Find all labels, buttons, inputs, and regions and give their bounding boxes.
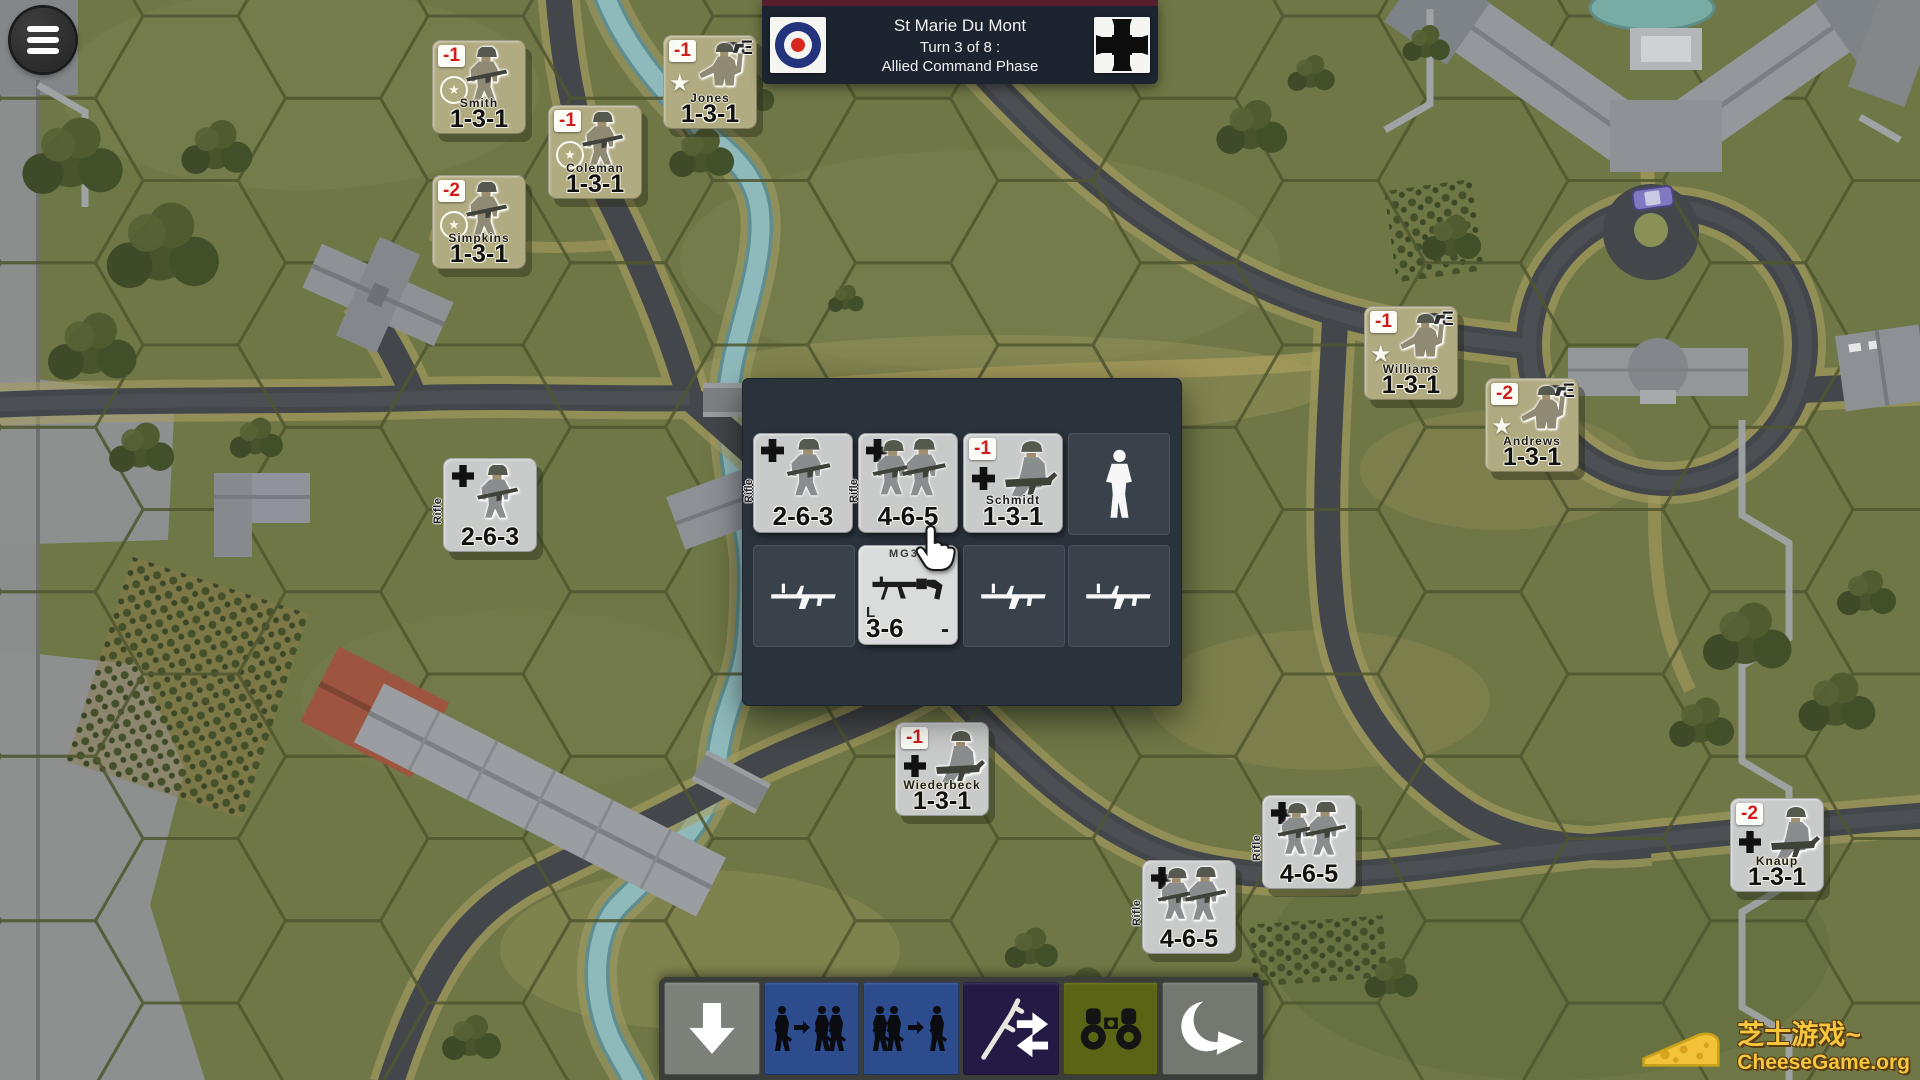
- modifier-badge: -1: [1370, 311, 1397, 333]
- unit-counter-rifle-465-a[interactable]: Rifle 4-6-5: [1142, 860, 1236, 954]
- weapon-name: MG34: [858, 548, 958, 560]
- unit-stats: 1-3-1: [432, 105, 526, 134]
- unit-type-label: Rifle: [848, 479, 860, 503]
- game-screen: -1 ★ Smith 1-3-1 -1 E ★ Jones 1-3-1 -1 ★…: [0, 0, 1920, 1080]
- soldier-join-icon: [771, 1001, 853, 1057]
- cheese-icon: [1635, 1024, 1727, 1072]
- unit-stats: 1-3-1: [1485, 443, 1579, 472]
- unit-counter-andrews[interactable]: -2 E ★ Andrews 1-3-1: [1485, 378, 1579, 472]
- unit-stats: 4-6-5: [1142, 925, 1236, 954]
- unit-stats: 1-3-1: [1364, 371, 1458, 400]
- site-watermark: 芝士游戏~ CheeseGame.org: [1635, 1021, 1910, 1074]
- unit-stats: 4-6-5: [858, 501, 958, 532]
- turn-indicator: Turn 3 of 8 :: [834, 39, 1086, 56]
- crescent-arrow-icon: [1175, 996, 1245, 1062]
- rifle-swap-icon: [972, 994, 1050, 1064]
- unit-stats: 1-3-1: [663, 100, 757, 129]
- unit-stats: 1-3-1: [1730, 863, 1824, 892]
- german-cross-icon: [904, 755, 926, 777]
- stack-unit-schmidt[interactable]: -1 Schmidt 1-3-1: [963, 433, 1063, 533]
- mg-silhouette-icon: [977, 571, 1051, 622]
- unit-counter-rifle-263[interactable]: Rifle 2-6-3: [443, 458, 537, 552]
- leader-figure-icon: [992, 439, 1060, 501]
- empty-weapon-slot[interactable]: [753, 545, 855, 647]
- unit-stats: 1-3-1: [548, 170, 642, 199]
- empty-weapon-slot[interactable]: [1068, 545, 1170, 647]
- stack-inspector-panel: Rifle 2-6-3 Rifle 4-6-5 -1 Schmidt 1-3-1…: [742, 378, 1182, 706]
- swap-weapons-button[interactable]: [963, 982, 1059, 1075]
- move-down-button[interactable]: [664, 982, 760, 1075]
- squad-figure-icon: [1151, 867, 1234, 925]
- stack-unit-rifle-465[interactable]: Rifle 4-6-5: [858, 433, 958, 533]
- watermark-url-text: CheeseGame.org: [1737, 1051, 1910, 1074]
- vehicle-car: [1632, 185, 1674, 210]
- unit-stats: 4-6-5: [1262, 860, 1356, 889]
- unit-counter-jones[interactable]: -1 E ★ Jones 1-3-1: [663, 35, 757, 129]
- undo-turn-button[interactable]: [1162, 982, 1258, 1075]
- los-check-button[interactable]: [1063, 982, 1159, 1075]
- unit-counter-smith[interactable]: -1 ★ Smith 1-3-1: [432, 40, 526, 134]
- unit-counter-simpkins[interactable]: -2 ★ Simpkins 1-3-1: [432, 175, 526, 269]
- german-cross-icon: [1094, 17, 1150, 73]
- down-arrow-icon: [686, 1003, 738, 1055]
- phase-indicator: Allied Command Phase: [834, 58, 1086, 75]
- mg-silhouette-icon: [1082, 571, 1156, 622]
- menu-button[interactable]: [11, 8, 75, 72]
- unit-counter-wiederbeck[interactable]: -1 Wiederbeck 1-3-1: [895, 722, 989, 816]
- unit-stats: 1-3-1: [895, 787, 989, 816]
- german-cross-icon: [1739, 831, 1761, 853]
- unit-stats: 1-3-1: [963, 501, 1063, 532]
- unit-stats: 2-6-3: [753, 501, 853, 532]
- modifier-badge: -1: [669, 40, 696, 62]
- watermark-cjk-text: 芝士游戏~: [1737, 1021, 1910, 1051]
- mg34-icon: [870, 563, 945, 609]
- mg-silhouette-icon: [767, 571, 841, 622]
- squad-figure-icon: [1271, 802, 1354, 860]
- empty-unit-slot[interactable]: [1068, 433, 1170, 535]
- command-toolbar: [659, 977, 1263, 1080]
- unit-counter-coleman[interactable]: -1 ★ Coleman 1-3-1: [548, 105, 642, 199]
- scenario-title: St Marie Du Mont: [834, 16, 1086, 36]
- soldier-figure-icon: [468, 465, 526, 523]
- unit-type-label: Rifle: [743, 479, 755, 503]
- unit-counter-rifle-465-b[interactable]: Rifle 4-6-5: [1262, 795, 1356, 889]
- person-silhouette-icon: [1097, 448, 1142, 520]
- hamburger-icon: [27, 26, 59, 32]
- weapon-ammo: -: [941, 616, 949, 644]
- allied-roundel-icon: [770, 17, 826, 73]
- unit-counter-williams[interactable]: -1 E ★ Williams 1-3-1: [1364, 306, 1458, 400]
- unit-type-label: Rifle: [1131, 900, 1143, 926]
- unit-type-label: Rifle: [432, 498, 444, 524]
- unit-stats: 1-3-1: [432, 240, 526, 269]
- unit-counter-knaup[interactable]: -2 Knaup 1-3-1: [1730, 798, 1824, 892]
- unit-type-label: Rifle: [1251, 835, 1263, 861]
- unit-stats: 2-6-3: [443, 523, 537, 552]
- stack-split-button[interactable]: [863, 982, 959, 1075]
- squad-figure-icon: [865, 439, 954, 501]
- turn-status-bar: St Marie Du Mont Turn 3 of 8 : Allied Co…: [762, 0, 1158, 84]
- modifier-badge: -2: [1491, 383, 1518, 405]
- weapon-counter-mg34[interactable]: MG34 L 3-6 -: [858, 545, 958, 645]
- soldier-split-icon: [870, 1001, 952, 1057]
- soldier-figure-icon: [777, 439, 839, 501]
- stack-join-button[interactable]: [764, 982, 860, 1075]
- stack-unit-rifle-263[interactable]: Rifle 2-6-3: [753, 433, 853, 533]
- empty-weapon-slot[interactable]: [963, 545, 1065, 647]
- binoculars-icon: [1079, 1005, 1143, 1053]
